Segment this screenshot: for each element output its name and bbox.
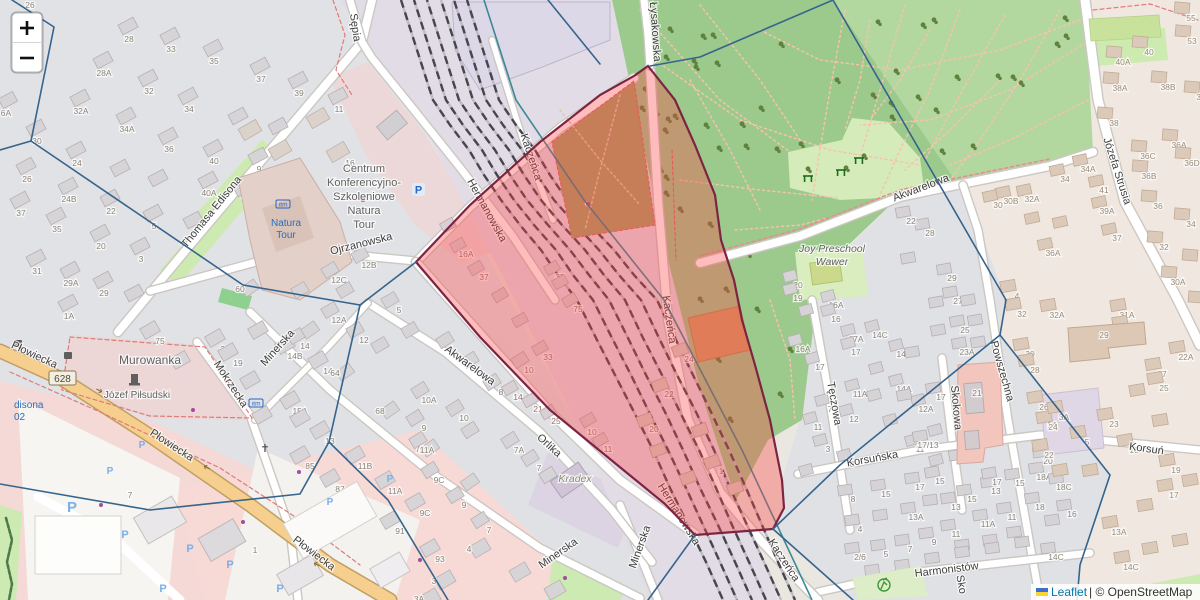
svg-text:7: 7 (908, 544, 913, 554)
svg-text:12: 12 (849, 414, 859, 424)
svg-text:P: P (415, 185, 422, 197)
svg-text:1A: 1A (64, 311, 75, 321)
svg-text:3: 3 (139, 254, 144, 264)
svg-text:30A: 30A (1170, 277, 1185, 287)
svg-text:12A: 12A (331, 315, 346, 325)
svg-text:17: 17 (992, 477, 1002, 487)
svg-text:16: 16 (831, 314, 841, 324)
svg-text:P: P (226, 559, 233, 571)
svg-text:6A: 6A (1, 108, 12, 118)
svg-text:19: 19 (793, 293, 803, 303)
svg-text:5: 5 (397, 305, 402, 315)
svg-text:Joy Preschool: Joy Preschool (798, 243, 866, 255)
svg-text:8: 8 (851, 494, 856, 504)
svg-text:32: 32 (1159, 242, 1169, 252)
svg-text:25: 25 (960, 325, 970, 335)
svg-text:| © OpenStreetMap: | © OpenStreetMap (1089, 585, 1193, 599)
svg-text:26: 26 (22, 174, 32, 184)
svg-text:33: 33 (166, 44, 176, 54)
svg-text:53: 53 (1187, 36, 1197, 46)
svg-text:18C: 18C (1056, 482, 1072, 492)
svg-text:Natura: Natura (347, 205, 381, 217)
svg-text:26: 26 (25, 0, 35, 10)
svg-text:15: 15 (881, 489, 891, 499)
svg-text:9C: 9C (434, 475, 445, 485)
svg-text:40A: 40A (201, 188, 216, 198)
svg-text:22: 22 (906, 216, 916, 226)
svg-text:30B: 30B (1003, 196, 1018, 206)
svg-text:9C: 9C (420, 508, 431, 518)
svg-text:32A: 32A (1049, 310, 1064, 320)
svg-text:14C: 14C (1048, 552, 1064, 562)
svg-text:1: 1 (253, 545, 258, 555)
svg-text:7: 7 (537, 463, 542, 473)
svg-text:24: 24 (72, 158, 82, 168)
svg-text:02: 02 (14, 412, 26, 423)
svg-text:17: 17 (936, 392, 946, 402)
svg-text:34: 34 (184, 104, 194, 114)
svg-text:37: 37 (1112, 233, 1122, 243)
svg-text:31: 31 (32, 266, 42, 276)
svg-text:ıtm: ıtm (278, 202, 287, 209)
svg-text:25: 25 (1159, 383, 1169, 393)
svg-text:Konferencyjno-: Konferencyjno- (327, 177, 401, 189)
svg-text:35: 35 (52, 224, 62, 234)
svg-text:22A: 22A (1178, 352, 1193, 362)
svg-text:29: 29 (947, 273, 957, 283)
svg-text:P: P (186, 543, 193, 555)
svg-text:34A: 34A (1080, 164, 1095, 174)
svg-text:7: 7 (487, 525, 492, 535)
svg-text:23: 23 (1109, 419, 1119, 429)
svg-text:13: 13 (951, 502, 961, 512)
svg-text:32: 32 (1017, 309, 1027, 319)
svg-text:64: 64 (330, 368, 340, 378)
svg-text:29: 29 (1099, 330, 1109, 340)
svg-text:17: 17 (851, 347, 861, 357)
svg-text:93: 93 (435, 554, 445, 564)
svg-text:75: 75 (155, 336, 165, 346)
svg-text:2/6: 2/6 (854, 552, 866, 562)
svg-text:P: P (276, 583, 283, 595)
svg-text:15: 15 (935, 476, 945, 486)
svg-text:13A: 13A (908, 512, 923, 522)
svg-text:91: 91 (395, 526, 405, 536)
svg-text:37: 37 (16, 208, 26, 218)
svg-text:12B: 12B (361, 260, 376, 270)
svg-text:10: 10 (459, 413, 469, 423)
svg-text:29A: 29A (63, 278, 78, 288)
svg-text:37: 37 (256, 74, 266, 84)
svg-text:4: 4 (858, 524, 863, 534)
svg-text:32A: 32A (73, 106, 88, 116)
svg-text:36A: 36A (1045, 248, 1060, 258)
svg-text:11A: 11A (853, 389, 868, 399)
svg-text:17: 17 (915, 482, 925, 492)
svg-text:11: 11 (814, 422, 823, 432)
svg-text:16: 16 (1067, 509, 1077, 519)
svg-text:7: 7 (128, 490, 133, 500)
svg-text:34: 34 (1060, 174, 1070, 184)
svg-text:✝: ✝ (260, 443, 269, 455)
svg-text:34: 34 (1186, 219, 1196, 229)
svg-text:38: 38 (1109, 118, 1119, 128)
svg-text:32: 32 (144, 86, 154, 96)
svg-text:22: 22 (1044, 450, 1054, 460)
svg-text:38B: 38B (1160, 82, 1175, 92)
svg-text:20: 20 (96, 241, 106, 251)
svg-text:14C: 14C (1123, 562, 1139, 572)
svg-text:36B: 36B (1141, 171, 1156, 181)
svg-text:14C: 14C (872, 330, 888, 340)
svg-text:35: 35 (209, 56, 219, 66)
svg-text:12A: 12A (918, 404, 933, 414)
svg-text:P: P (387, 474, 394, 485)
svg-text:14: 14 (300, 341, 310, 351)
svg-text:36D: 36D (1184, 158, 1200, 168)
svg-text:40: 40 (1144, 47, 1154, 57)
svg-text:15: 15 (1015, 478, 1025, 488)
svg-text:4: 4 (467, 544, 472, 554)
svg-text:P: P (159, 583, 166, 595)
svg-text:68: 68 (375, 406, 385, 416)
svg-text:17/13: 17/13 (917, 440, 939, 450)
svg-text:11: 11 (335, 104, 344, 114)
svg-text:P: P (327, 497, 334, 508)
svg-text:3A: 3A (414, 594, 425, 600)
svg-text:19: 19 (1171, 465, 1181, 475)
svg-text:Józef Piłsudski: Józef Piłsudski (104, 390, 170, 401)
svg-text:ıtm: ıtm (251, 401, 260, 408)
svg-text:28A: 28A (96, 68, 111, 78)
svg-text:5: 5 (884, 549, 889, 559)
svg-text:9: 9 (422, 423, 427, 433)
svg-text:Tour: Tour (276, 230, 296, 241)
svg-text:28: 28 (1030, 365, 1040, 375)
svg-text:628: 628 (54, 374, 71, 385)
svg-text:Leaflet: Leaflet (1051, 585, 1088, 599)
svg-text:36C: 36C (1140, 151, 1156, 161)
svg-text:7A: 7A (514, 445, 525, 455)
svg-text:32A: 32A (1024, 194, 1039, 204)
svg-text:Kradex: Kradex (558, 473, 592, 485)
svg-text:38A: 38A (1112, 83, 1127, 93)
svg-text:12: 12 (359, 335, 369, 345)
svg-text:23A: 23A (959, 347, 974, 357)
svg-text:11: 11 (952, 529, 961, 539)
svg-text:31: 31 (1196, 92, 1200, 102)
svg-text:19: 19 (233, 358, 243, 368)
svg-text:12C: 12C (331, 275, 347, 285)
svg-text:disona: disona (14, 400, 44, 411)
svg-text:30: 30 (993, 200, 1003, 210)
svg-text:16A: 16A (795, 344, 810, 354)
svg-text:29: 29 (99, 288, 109, 298)
svg-text:11A: 11A (388, 486, 403, 496)
svg-text:18: 18 (1035, 502, 1045, 512)
svg-text:55: 55 (1186, 13, 1196, 23)
svg-text:28: 28 (124, 34, 134, 44)
svg-text:40: 40 (209, 156, 219, 166)
svg-text:39A: 39A (1099, 206, 1114, 216)
svg-text:Szkoleniowe: Szkoleniowe (333, 191, 395, 203)
svg-text:17: 17 (815, 362, 825, 372)
svg-text:Centrum: Centrum (343, 163, 385, 175)
svg-text:P: P (139, 440, 146, 451)
svg-text:Wawer: Wawer (816, 256, 849, 268)
svg-text:39: 39 (294, 88, 304, 98)
svg-text:40A: 40A (1115, 57, 1130, 67)
svg-text:41: 41 (1099, 185, 1109, 195)
svg-text:22: 22 (106, 206, 116, 216)
svg-text:Murowanka: Murowanka (119, 353, 181, 367)
svg-text:13A: 13A (1111, 527, 1126, 537)
svg-text:36: 36 (164, 144, 174, 154)
svg-text:Natura: Natura (271, 218, 301, 229)
svg-text:11B: 11B (358, 461, 373, 471)
svg-text:17: 17 (1169, 490, 1179, 500)
svg-text:9: 9 (462, 500, 467, 510)
svg-text:P: P (121, 529, 128, 541)
svg-text:24: 24 (1048, 422, 1058, 432)
svg-text:P: P (107, 466, 114, 477)
svg-text:15: 15 (967, 494, 977, 504)
svg-text:21: 21 (972, 388, 982, 398)
svg-text:13: 13 (991, 486, 1001, 496)
svg-text:14: 14 (513, 392, 523, 402)
svg-text:24B: 24B (61, 194, 76, 204)
svg-text:11A: 11A (981, 519, 996, 529)
svg-text:36: 36 (1153, 201, 1163, 211)
svg-text:14B: 14B (287, 351, 302, 361)
svg-text:10A: 10A (421, 395, 436, 405)
svg-text:34A: 34A (119, 124, 134, 134)
svg-text:9: 9 (932, 537, 937, 547)
svg-text:28: 28 (925, 228, 935, 238)
svg-text:P: P (67, 499, 77, 516)
svg-text:Tour: Tour (353, 219, 375, 231)
svg-text:11A: 11A (420, 445, 435, 455)
svg-text:3: 3 (826, 444, 831, 454)
svg-text:11: 11 (1008, 512, 1017, 522)
